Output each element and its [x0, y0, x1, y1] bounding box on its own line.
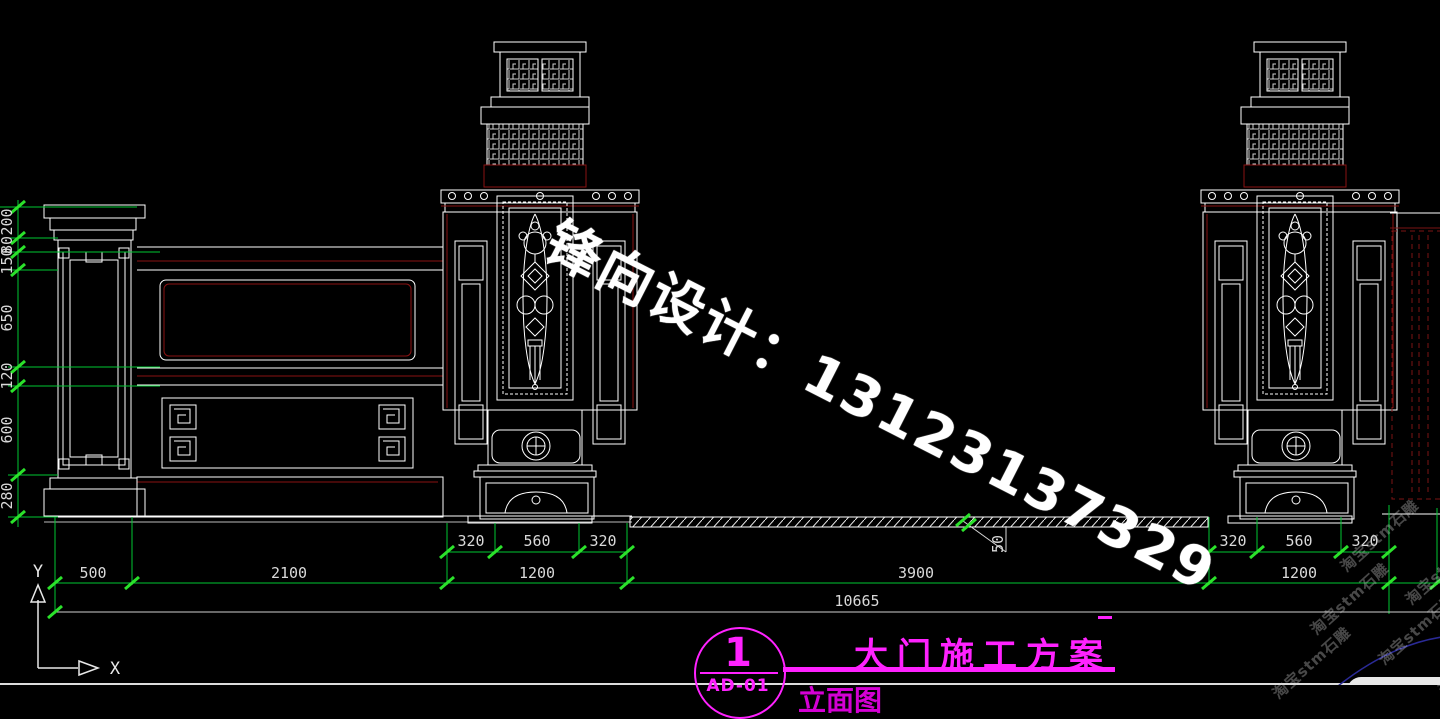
title-tick-mark: [1098, 616, 1112, 619]
dim-500: 500: [79, 564, 106, 582]
dim-left-200: 200: [0, 208, 16, 235]
dim-c320b: 320: [589, 532, 616, 550]
detail-code: AD-01: [694, 676, 782, 696]
dim-c320a: 320: [457, 532, 484, 550]
y-axis-arrow-icon: [31, 585, 45, 602]
dim-r560: 560: [1285, 532, 1312, 550]
x-axis-arrow-icon: [79, 661, 98, 675]
cad-canvas: 200 80 150 650 120 600 280 320 560 320 1…: [0, 0, 1440, 685]
ucs-axis: Y X: [31, 562, 121, 679]
dim-2100: 2100: [271, 564, 307, 582]
dim-left-120: 120: [0, 362, 16, 389]
dim-c560: 560: [523, 532, 550, 550]
dim-50: 50: [989, 535, 1007, 553]
bottom-right-block: [1347, 677, 1440, 685]
right-pillar: [1201, 42, 1399, 523]
detail-number: 1: [694, 630, 782, 676]
dim-left-150: 150: [0, 247, 16, 274]
dim-left-600: 600: [0, 416, 16, 443]
left-wall: [44, 247, 632, 522]
detail-bubble-divider: [700, 672, 778, 674]
dimensions: 200 80 150 650 120 600 280 320 560 320 1…: [0, 200, 1440, 618]
drawing-subtitle: 立面图: [798, 679, 882, 719]
dim-left-650: 650: [0, 304, 16, 331]
dim-r1200: 1200: [1281, 564, 1317, 582]
dim-10665: 10665: [834, 592, 879, 610]
wall-upper-panel: [160, 280, 415, 360]
x-axis-label: X: [110, 659, 121, 679]
wall-lower-panel: [162, 398, 413, 468]
y-axis-label: Y: [33, 562, 43, 582]
gate-leaf-dashed: [1382, 213, 1440, 514]
dim-c1200: 1200: [519, 564, 555, 582]
title-underline: [783, 667, 1115, 672]
dim-3900: 3900: [898, 564, 934, 582]
dim-left-280: 280: [0, 482, 16, 509]
